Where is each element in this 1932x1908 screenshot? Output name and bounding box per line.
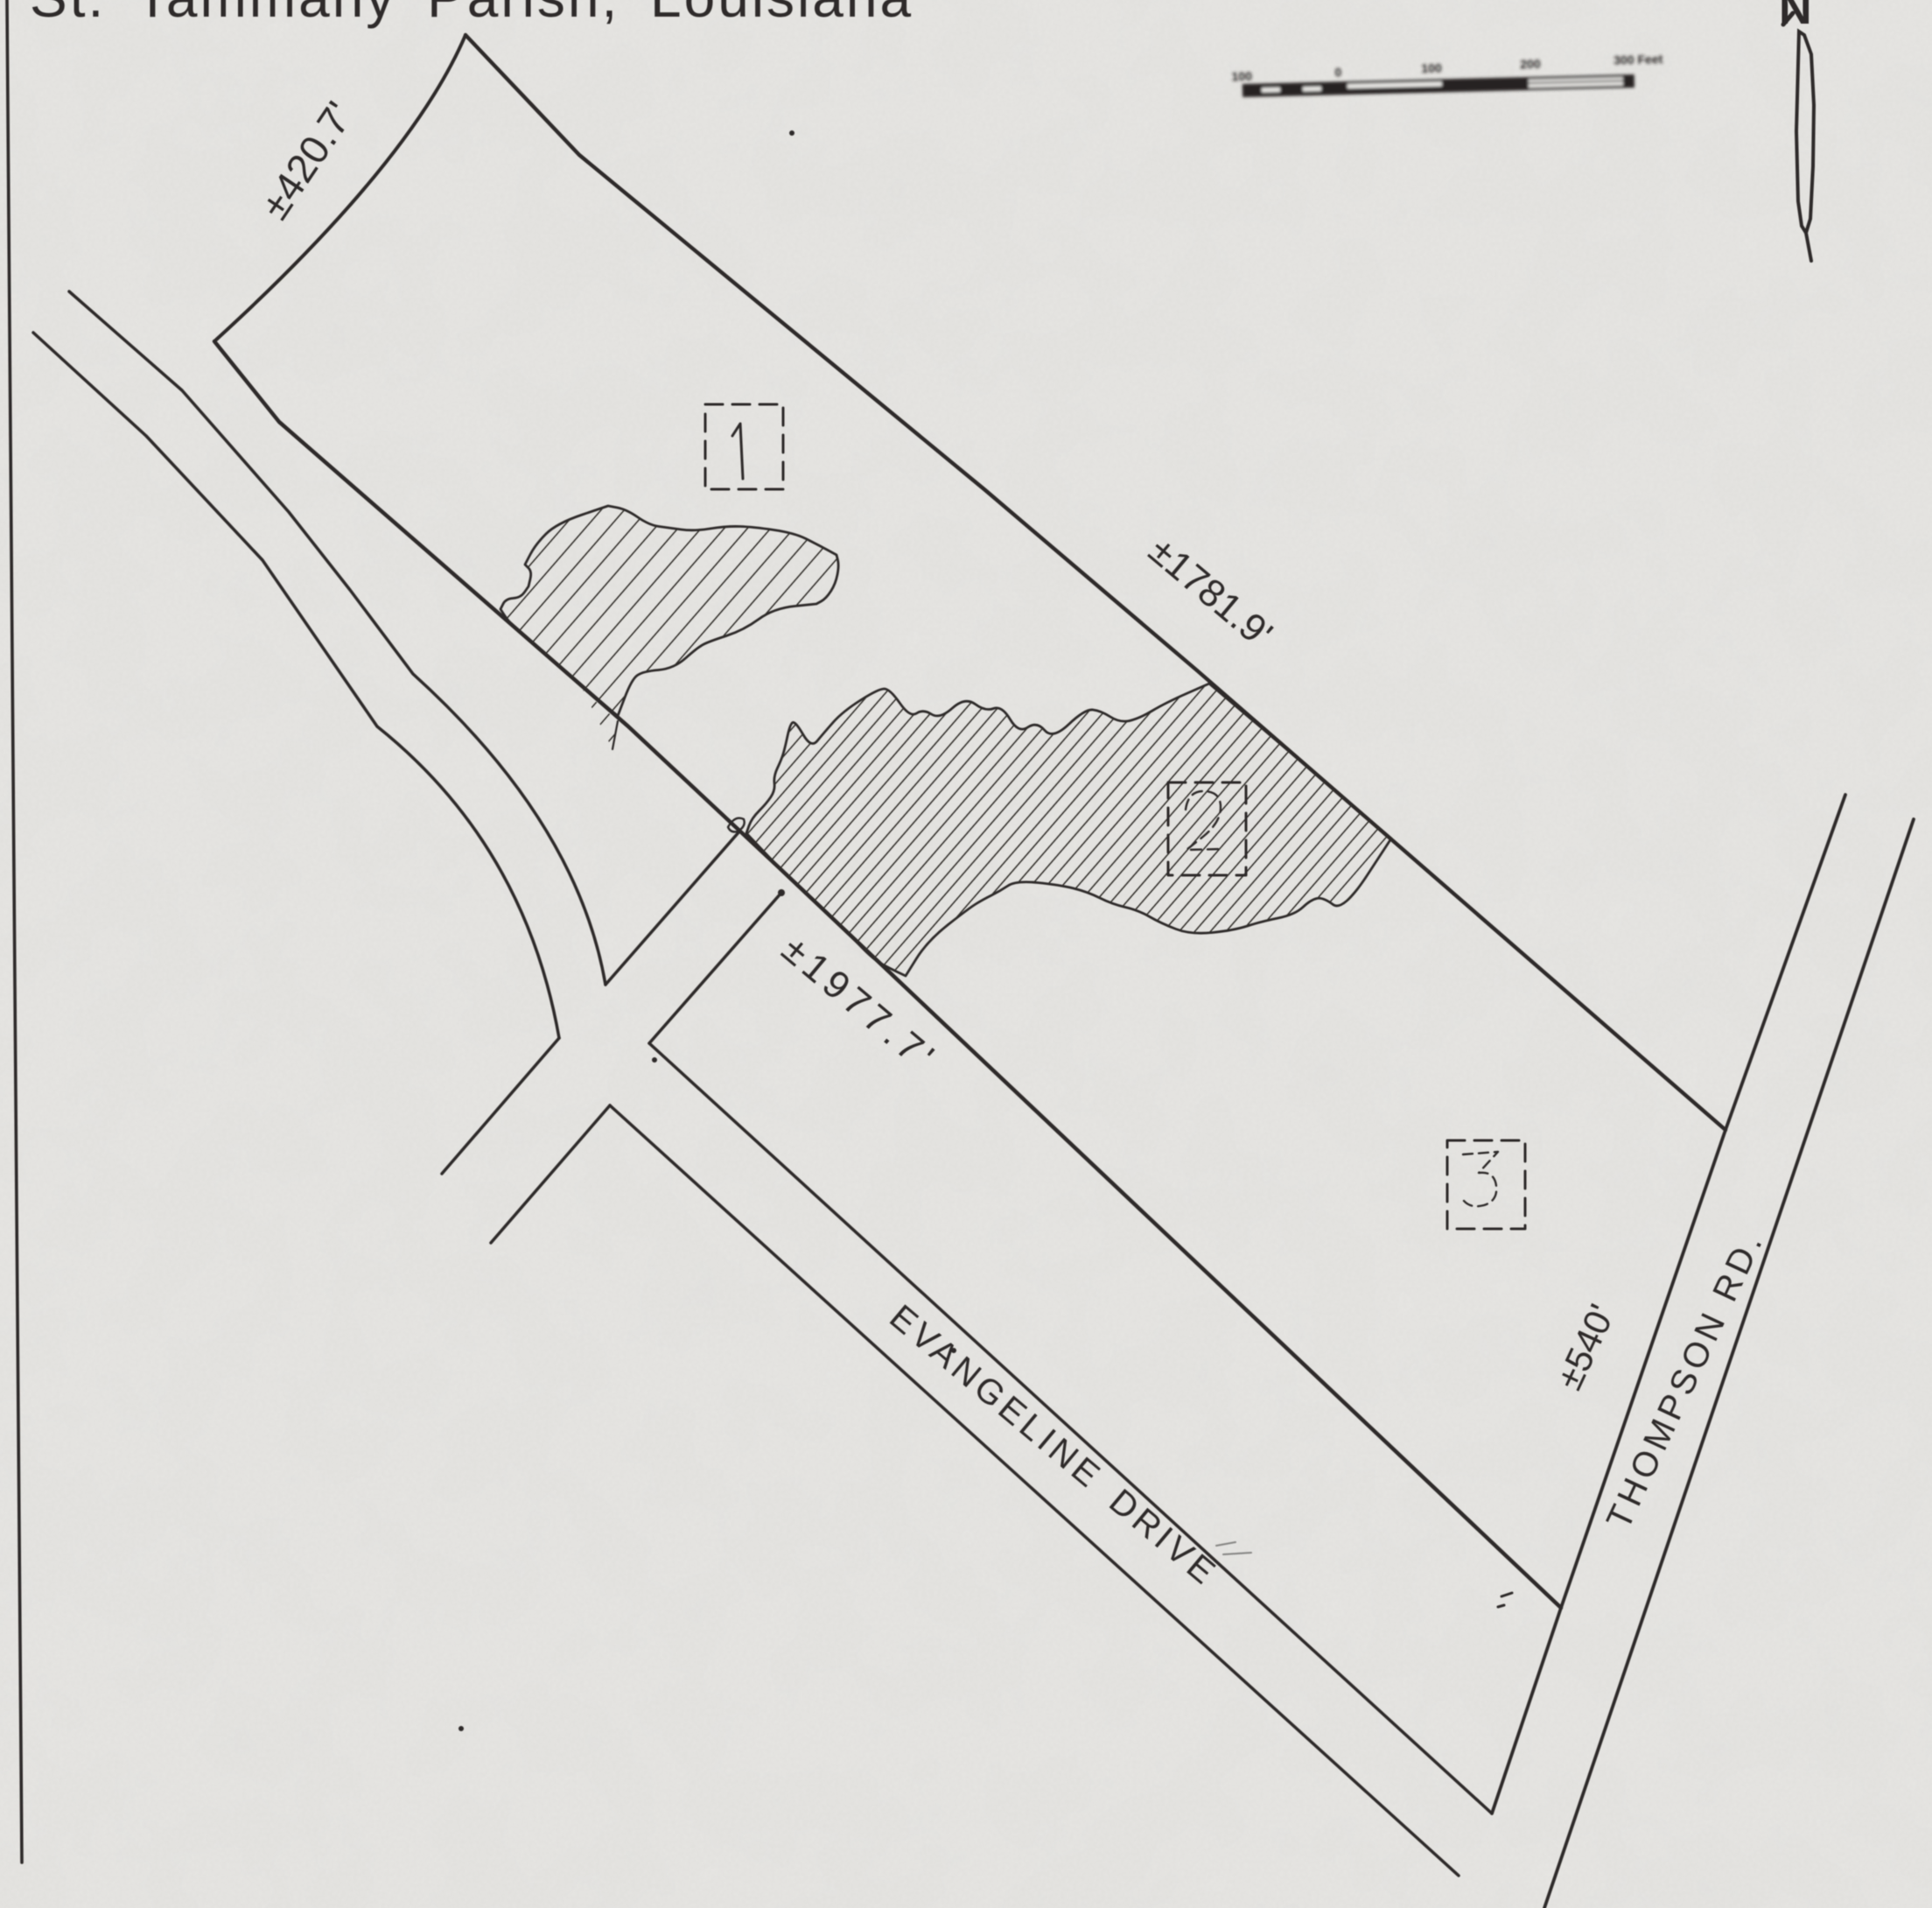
svg-text:200: 200 xyxy=(1520,57,1541,72)
svg-text:300 Feet: 300 Feet xyxy=(1613,52,1663,67)
svg-text:N: N xyxy=(1779,0,1812,34)
svg-text:0: 0 xyxy=(1334,65,1341,79)
svg-text:St. Tammany Parish, Louisiana: St. Tammany Parish, Louisiana xyxy=(30,0,913,29)
svg-text:100: 100 xyxy=(1231,69,1252,84)
svg-text:100: 100 xyxy=(1421,60,1442,75)
